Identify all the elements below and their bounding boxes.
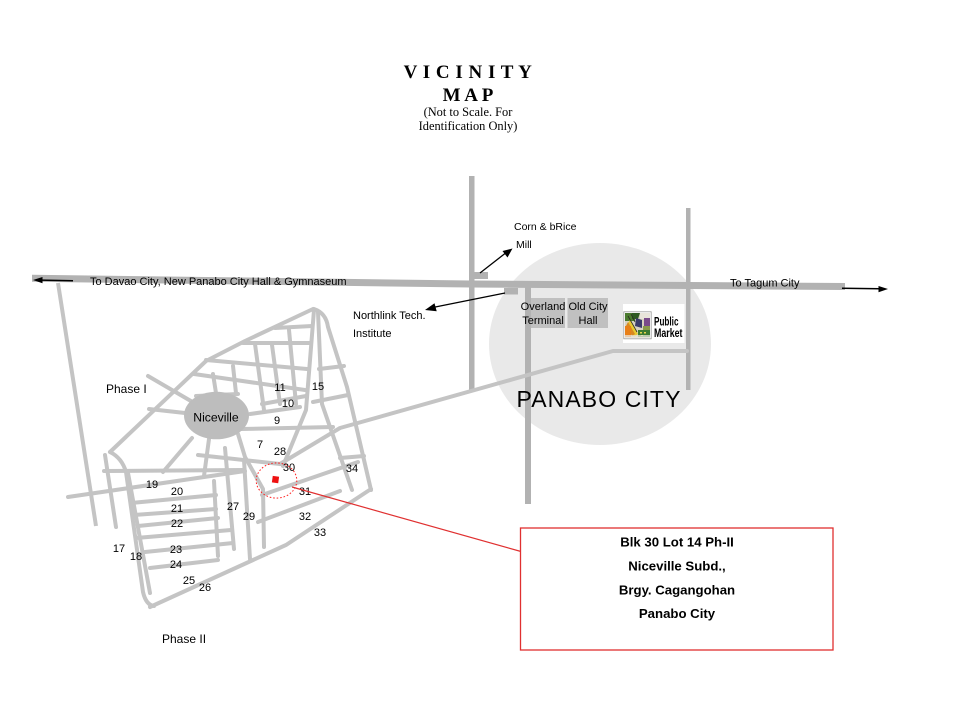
- svg-text:21: 21: [171, 503, 183, 515]
- svg-text:Niceville Subd.,: Niceville Subd.,: [628, 559, 725, 574]
- svg-text:11: 11: [274, 382, 285, 394]
- svg-text:18: 18: [130, 551, 142, 563]
- svg-text:25: 25: [183, 575, 195, 587]
- svg-text:19: 19: [146, 479, 158, 491]
- svg-text:Brgy. Cagangohan: Brgy. Cagangohan: [619, 583, 735, 598]
- svg-text:34: 34: [346, 463, 358, 475]
- svg-text:Identification Only): Identification Only): [419, 119, 518, 133]
- svg-text:Panabo City: Panabo City: [639, 606, 716, 621]
- svg-text:22: 22: [171, 518, 183, 530]
- svg-text:Phase II: Phase II: [162, 632, 206, 646]
- svg-text:Niceville: Niceville: [193, 411, 239, 425]
- svg-text:24: 24: [170, 559, 182, 571]
- svg-text:17: 17: [113, 543, 125, 555]
- svg-text:Phase I: Phase I: [106, 382, 147, 396]
- svg-text:PANABO CITY: PANABO CITY: [516, 386, 681, 412]
- svg-text:15: 15: [312, 381, 324, 393]
- svg-text:M A P: M A P: [443, 85, 494, 106]
- svg-text:Overland: Overland: [521, 301, 566, 313]
- svg-text:To Davao City, New Panabo City: To Davao City, New Panabo City Hall & Gy…: [90, 276, 347, 288]
- svg-text:29: 29: [243, 511, 255, 523]
- svg-text:V I C I N I T Y: V I C I N I T Y: [404, 62, 533, 83]
- svg-text:(Not to Scale. For: (Not to Scale. For: [424, 105, 514, 119]
- svg-text:Blk 30 Lot 14 Ph-II: Blk 30 Lot 14 Ph-II: [620, 535, 734, 550]
- svg-text:28: 28: [274, 446, 286, 458]
- svg-text:26: 26: [199, 582, 211, 594]
- svg-text:Terminal: Terminal: [522, 315, 564, 327]
- svg-text:Institute: Institute: [353, 328, 392, 340]
- svg-text:23: 23: [170, 544, 182, 556]
- svg-text:7: 7: [257, 439, 263, 451]
- svg-text:Mill: Mill: [516, 239, 532, 251]
- svg-text:33: 33: [314, 527, 326, 539]
- svg-text:To Tagum City: To Tagum City: [730, 278, 800, 290]
- svg-text:9: 9: [274, 415, 280, 427]
- svg-text:Corn & bRice: Corn & bRice: [514, 221, 577, 233]
- svg-text:Northlink Tech.: Northlink Tech.: [353, 310, 426, 322]
- svg-text:27: 27: [227, 501, 239, 513]
- svg-text:Old City: Old City: [568, 301, 608, 313]
- svg-text:Hall: Hall: [579, 315, 598, 327]
- svg-text:Market: Market: [654, 326, 683, 340]
- svg-text:32: 32: [299, 511, 311, 523]
- svg-text:10: 10: [282, 398, 294, 410]
- svg-text:30: 30: [283, 462, 295, 474]
- svg-text:20: 20: [171, 486, 183, 498]
